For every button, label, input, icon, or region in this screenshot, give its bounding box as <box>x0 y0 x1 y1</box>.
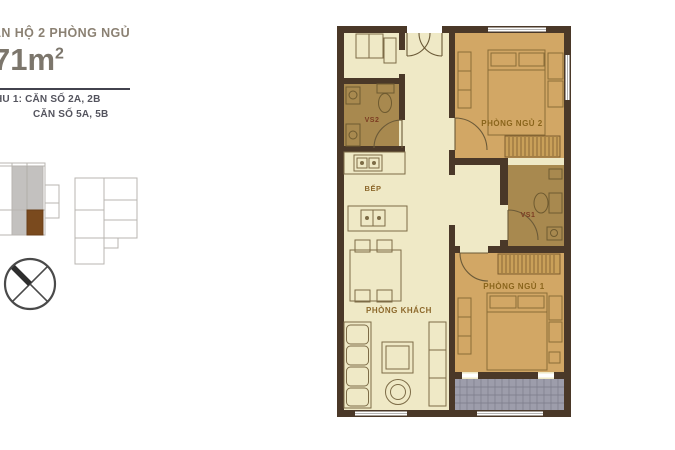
compass-north-needle <box>13 267 30 284</box>
floorplan: VS2 BẾP PHÒNG KHÁCH PHÒNG NGỦ 2 VS1 PHÒN… <box>330 20 580 425</box>
label-bedroom-1: PHÒNG NGỦ 1 <box>483 282 545 291</box>
unit-numbers-line-1: HU 1: CĂN SỐ 2A, 2B <box>0 94 101 105</box>
room-bathroom-1 <box>508 165 564 246</box>
keyplan-right-block <box>75 178 137 238</box>
balcony-floor <box>455 379 564 410</box>
label-living-room: PHÒNG KHÁCH <box>366 306 432 315</box>
label-bathroom-1: VS1 <box>521 212 536 219</box>
keyplan-highlighted-cell <box>12 210 27 235</box>
header-divider <box>0 88 130 90</box>
area-value: 71m <box>0 42 55 77</box>
apartment-area: 71m2 <box>0 42 64 78</box>
wardrobe-bedroom-1 <box>498 254 560 274</box>
keyplan-thumbnail <box>0 158 145 270</box>
label-bedroom-2: PHÒNG NGỦ 2 <box>481 119 543 128</box>
label-bathroom-2: VS2 <box>365 117 380 124</box>
area-superscript: 2 <box>55 46 64 63</box>
apartment-type-title: ĂN HỘ 2 PHÒNG NGỦ <box>0 26 130 40</box>
keyplan-current-unit <box>27 210 43 235</box>
compass-icon <box>0 255 62 317</box>
label-kitchen: BẾP <box>365 183 382 193</box>
unit-numbers-line-2: CĂN SỐ 5A, 5B <box>33 109 108 120</box>
